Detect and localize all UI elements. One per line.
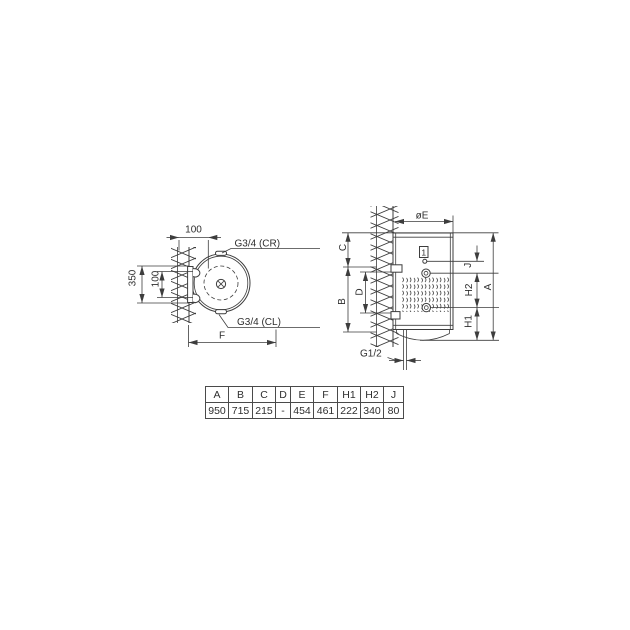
- coil-connection-lower: [422, 303, 430, 311]
- table-header-e: E: [291, 387, 314, 403]
- table-header-j: J: [384, 387, 404, 403]
- dim-label-j: J: [463, 263, 474, 268]
- table-header-d: D: [276, 387, 291, 403]
- dim-label-100-side: 100: [151, 270, 162, 287]
- dim-f: F: [189, 325, 277, 347]
- table-header-b: B: [229, 387, 253, 403]
- table-header-h1: H1: [338, 387, 361, 403]
- table-value-row: 950 715 215 - 454 461 222 340 80: [206, 403, 404, 419]
- table-value-d: -: [276, 403, 291, 419]
- tank-side-view: 1: [391, 233, 453, 370]
- label-g34-cr: G3/4 (CR): [235, 239, 281, 250]
- table-value-h1: 222: [338, 403, 361, 419]
- table-header-h2: H2: [361, 387, 384, 403]
- dim-label-100-top: 100: [185, 225, 202, 236]
- dim-label-oe: øE: [416, 211, 429, 222]
- dim-j: J: [463, 246, 477, 268]
- bottom-dome: [397, 334, 450, 341]
- table-value-h2: 340: [361, 403, 384, 419]
- fitting-bottom: [216, 310, 227, 314]
- right-view: 1 øE C: [337, 206, 499, 370]
- diagram-canvas: 100 350 100 G3/4 (CR) G3/4 (CL) F: [0, 0, 630, 630]
- dimension-table: A B C D E F H1 H2 J 950 715 215 - 454 46…: [205, 386, 404, 419]
- table-value-j: 80: [384, 403, 404, 419]
- dim-label-f: F: [219, 331, 225, 342]
- callout-g34-cl: G3/4 (CL): [219, 315, 320, 329]
- technical-drawing-svg: 100 350 100 G3/4 (CR) G3/4 (CL) F: [0, 0, 630, 630]
- callout-g34-cr: G3/4 (CR): [222, 239, 320, 254]
- table-value-e: 454: [291, 403, 314, 419]
- table-header-row: A B C D E F H1 H2 J: [206, 387, 404, 403]
- bracket-hook-top: [193, 269, 200, 277]
- dim-a: A: [483, 233, 494, 340]
- tank-outline: [192, 254, 250, 312]
- dim-label-c: C: [338, 244, 349, 251]
- tank-top-view: [188, 251, 250, 314]
- table-value-b: 715: [229, 403, 253, 419]
- dim-oe: øE: [395, 211, 453, 233]
- table-header-c: C: [253, 387, 276, 403]
- dim-g12: G1/2: [360, 349, 421, 361]
- dim-label-d: D: [354, 288, 365, 295]
- label-g34-cl: G3/4 (CL): [237, 317, 281, 328]
- dim-h1: H1: [464, 308, 478, 341]
- dim-label-h2: H2: [464, 283, 475, 296]
- dim-label-h1: H1: [464, 315, 475, 328]
- table-value-c: 215: [253, 403, 276, 419]
- coil-connection-upper: [422, 269, 430, 277]
- table-header-f: F: [314, 387, 338, 403]
- dim-label-350: 350: [128, 269, 139, 286]
- drain-pipe: [404, 330, 407, 371]
- wall-bracket-upper: [391, 265, 402, 272]
- sensor-port: [423, 259, 427, 263]
- label-g12: G1/2: [360, 349, 382, 360]
- dim-label-b: B: [337, 298, 348, 305]
- dim-label-a: A: [483, 283, 494, 290]
- dim-h2: H2: [464, 273, 477, 307]
- bracket-hook-bottom: [193, 294, 200, 302]
- table-value-a: 950: [206, 403, 229, 419]
- table-header-a: A: [206, 387, 229, 403]
- wall-bracket-lower: [391, 312, 400, 319]
- table-value-f: 461: [314, 403, 338, 419]
- callout-1-label: 1: [421, 248, 426, 258]
- left-view: 100 350 100 G3/4 (CR) G3/4 (CL) F: [128, 225, 321, 348]
